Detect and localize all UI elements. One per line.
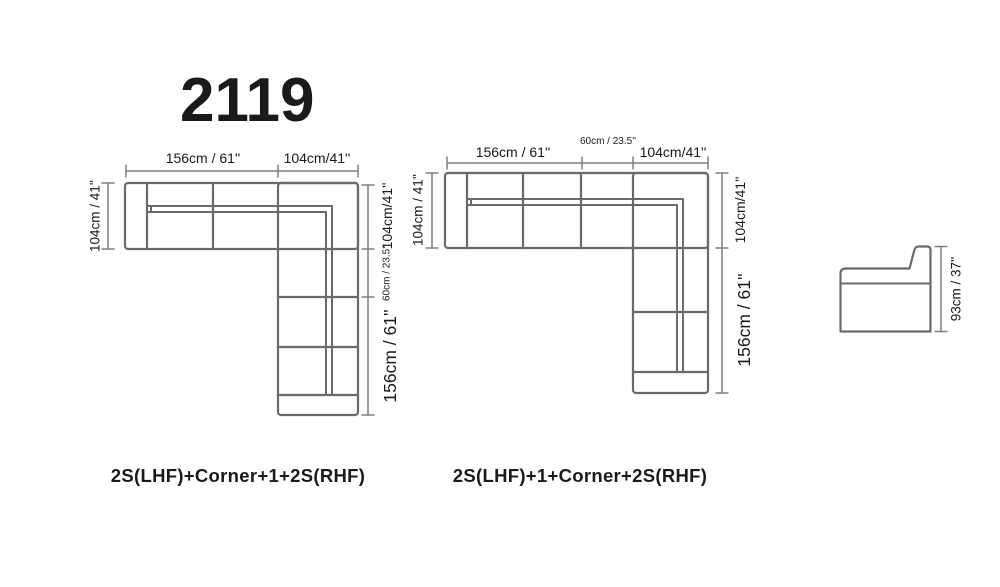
dim-label-2-right-corner: 104cm/41'': [732, 177, 748, 244]
dim-label-1-top-corner: 104cm/41'': [284, 150, 351, 166]
dim-label-side-height: 93cm / 37'': [949, 257, 964, 321]
dim-label-1-right-main: 156cm / 61'': [380, 309, 400, 402]
diagram-2-caption: 2S(LHF)+1+Corner+2S(RHF): [453, 465, 707, 486]
dim-label-2-top-corner: 104cm/41'': [640, 144, 707, 160]
dim-label-2-top-single: 60cm / 23.5'': [580, 136, 636, 147]
page-background: [0, 0, 1000, 587]
dim-label-1-right-single: 60cm / 23.5'': [382, 245, 393, 301]
dim-label-2-right-main: 156cm / 61'': [734, 273, 754, 366]
dim-label-1-top-main: 156cm / 61'': [166, 150, 241, 166]
diagram-canvas: 2119 156cm / 61'' 104cm/41'' 104cm / 4: [0, 0, 1000, 587]
diagram-1-caption: 2S(LHF)+Corner+1+2S(RHF): [111, 465, 365, 486]
spec-sheet: 2119 156cm / 61'' 104cm/41'' 104cm / 4: [0, 0, 1000, 587]
product-code: 2119: [180, 66, 315, 135]
dim-label-2-top-main: 156cm / 61'': [476, 144, 551, 160]
dim-label-1-right-corner: 104cm/41'': [379, 183, 395, 250]
dim-label-2-left-depth: 104cm / 41'': [411, 174, 426, 246]
dim-label-1-left-depth: 104cm / 41'': [88, 180, 103, 252]
